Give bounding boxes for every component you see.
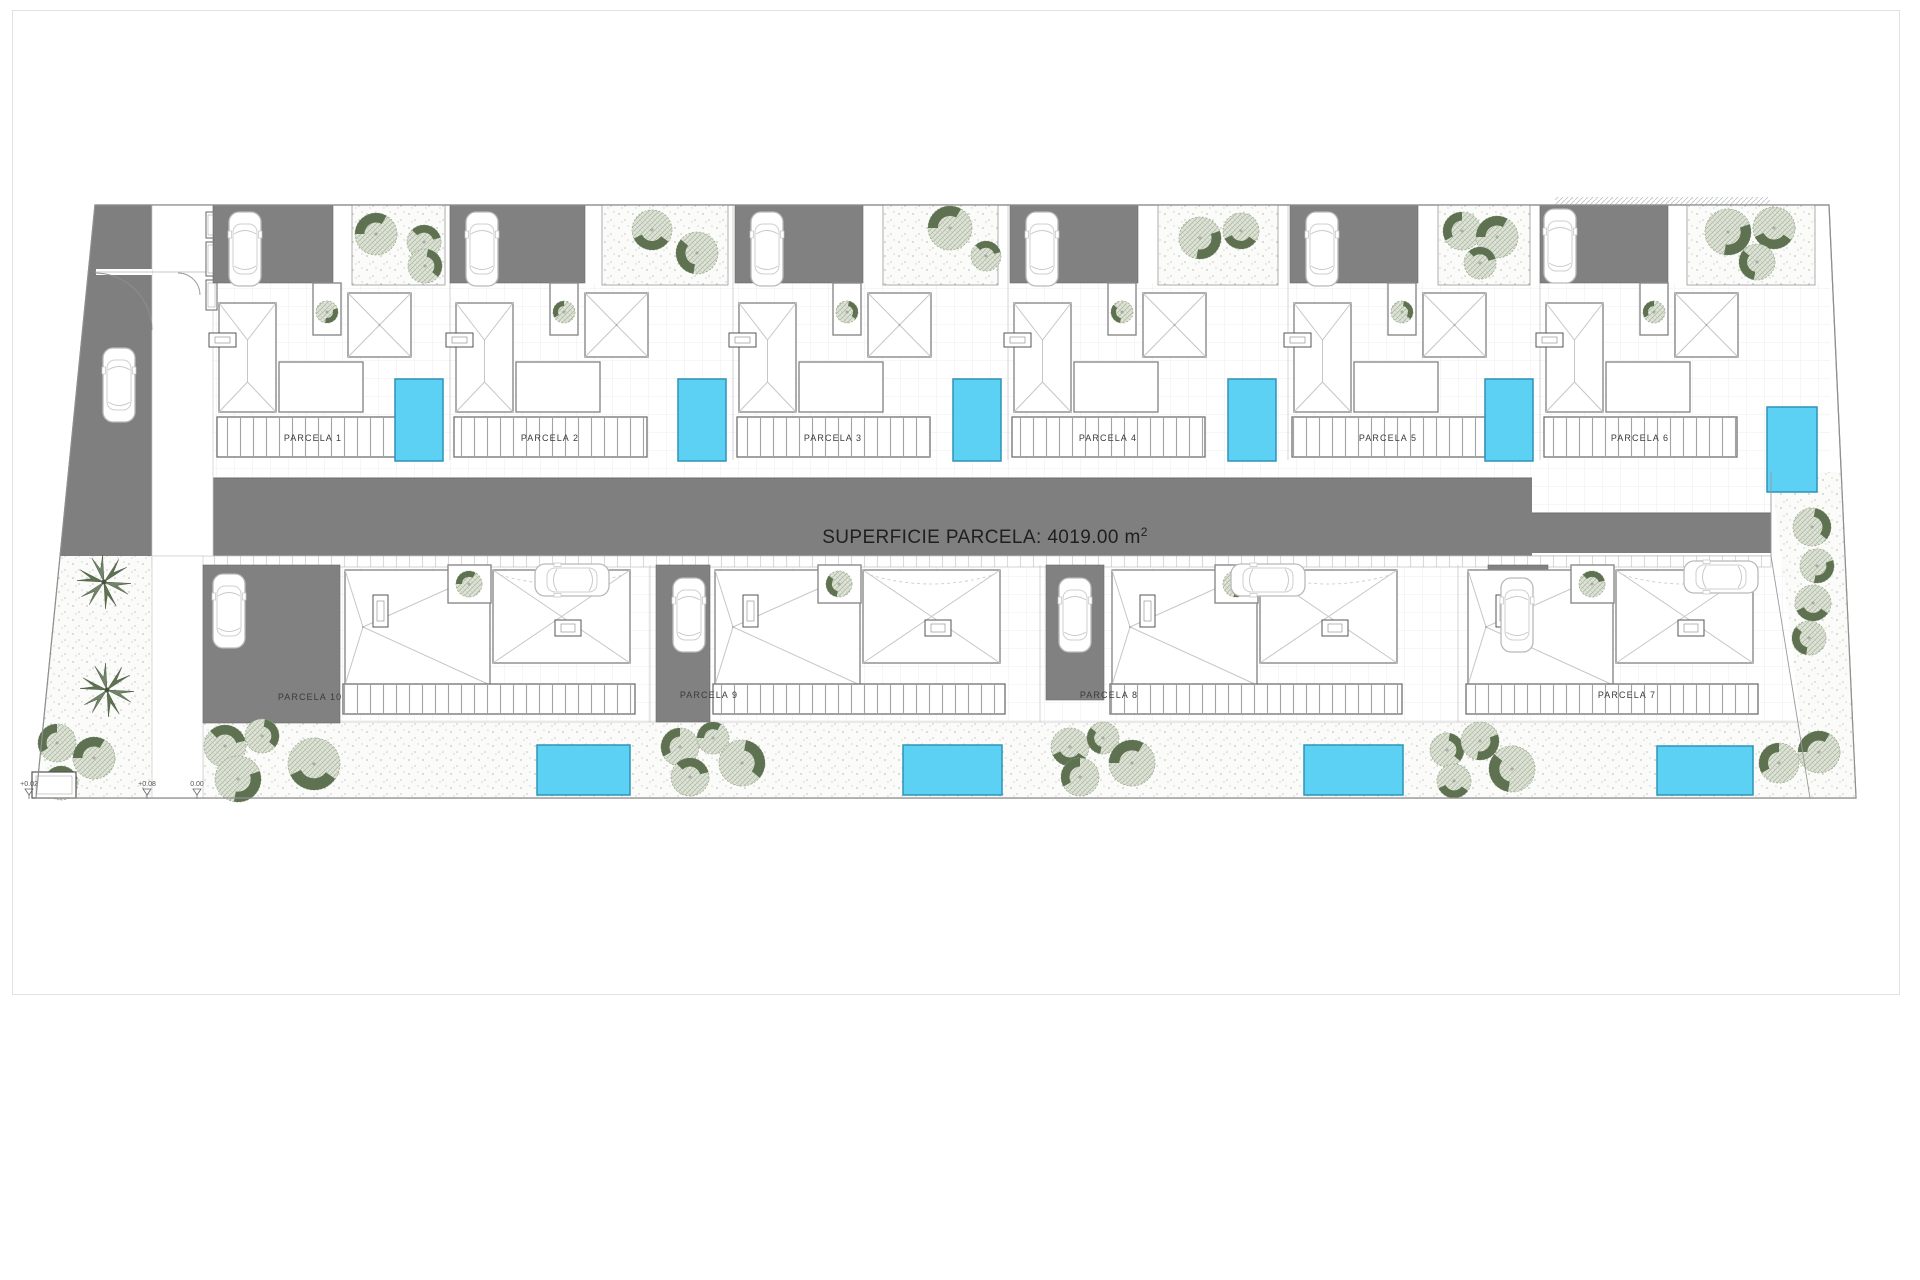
parcel-label: PARCELA 5 [1359, 433, 1417, 443]
car-icon [672, 578, 706, 652]
left-sidewalk [152, 205, 213, 556]
parcel-label: PARCELA 10 [278, 692, 342, 702]
right-road-segment [1532, 513, 1771, 553]
car-icon [212, 574, 246, 648]
pool-rect [537, 745, 630, 795]
car-icon [1025, 212, 1059, 286]
site-plan: PARCELA 1PARCELA 2PARCELA 3PARCELA 4PARC… [0, 0, 1920, 1280]
parcel-label: PARCELA 9 [680, 690, 738, 700]
parcel-label: PARCELA 2 [521, 433, 579, 443]
tree-icon [928, 206, 972, 250]
tree-icon [73, 737, 115, 779]
car-icon [750, 212, 784, 286]
pool-rect [1304, 745, 1403, 795]
parcel-label: PARCELA 1 [284, 433, 342, 443]
level-value: +0.08 [138, 781, 156, 788]
car-icon [535, 563, 609, 597]
car-icon [228, 212, 262, 286]
car-icon [1500, 578, 1534, 652]
boundary-wall-hatch [1555, 197, 1770, 205]
tree-icon [1109, 740, 1155, 786]
pool-rect [1657, 746, 1753, 795]
pool-rect [1228, 379, 1276, 461]
plan-page: PARCELA 1PARCELA 2PARCELA 3PARCELA 4PARC… [0, 0, 1920, 1280]
pool-rect [395, 379, 443, 461]
parcel-label: PARCELA 6 [1611, 433, 1669, 443]
pool-rect [953, 379, 1001, 461]
road-area-label: SUPERFICIE PARCELA: 4019.00 m2 [822, 525, 1148, 548]
pool-rect [1485, 379, 1533, 461]
car-icon [1543, 209, 1577, 283]
car-icon [102, 348, 136, 422]
pool-rect [903, 745, 1002, 795]
car-icon [1058, 578, 1092, 652]
car-icon [1684, 560, 1758, 594]
car-icon [1231, 563, 1305, 597]
car-icon [1305, 212, 1339, 286]
parcela-top-1: PARCELA 1 [209, 205, 445, 461]
parcel-label: PARCELA 3 [804, 433, 862, 443]
car-icon [465, 212, 499, 286]
tree-icon [1798, 731, 1840, 773]
level-value: +0.02 [20, 781, 38, 788]
parcel-label: PARCELA 4 [1079, 433, 1137, 443]
pool-rect [1767, 407, 1817, 492]
parcel-label: PARCELA 7 [1598, 690, 1656, 700]
parcel-label: PARCELA 8 [1080, 690, 1138, 700]
pool-rect [678, 379, 726, 461]
tree-icon [355, 213, 397, 255]
tree-icon [456, 571, 482, 597]
level-value: 0.00 [190, 781, 204, 788]
